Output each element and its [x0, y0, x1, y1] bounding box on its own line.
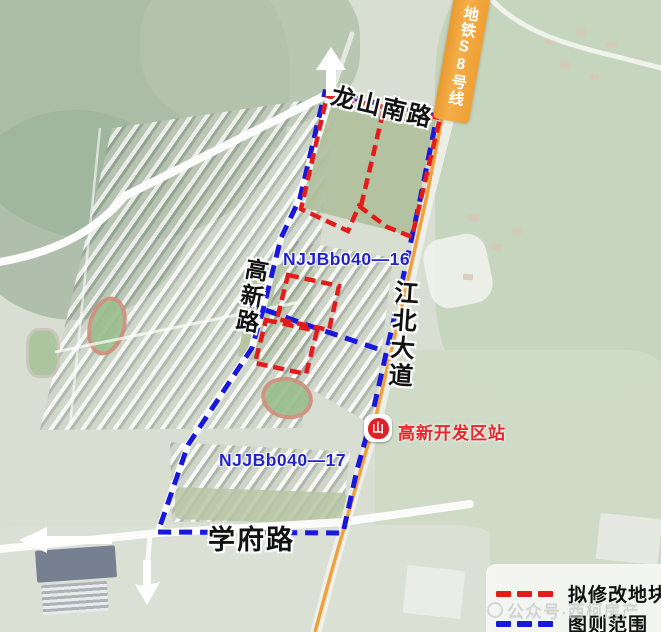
parcel-label-17: NJJBb040—17	[219, 450, 346, 471]
watermark: 公众号·西柯房产	[487, 597, 640, 622]
watermark-text: 公众号·西柯房产	[507, 597, 640, 622]
metro-s8-label: 地铁S8号线	[446, 4, 479, 107]
metro-logo-icon: 山	[368, 418, 389, 439]
metro-logo-glyph: 山	[372, 422, 384, 434]
arrow-left-icon	[19, 527, 112, 553]
red-dashed-line-icon	[496, 591, 559, 597]
watermark-logo-icon	[487, 602, 503, 618]
arrow-down-icon	[135, 560, 160, 605]
parcel-label-16: NJJBb040—16	[283, 249, 410, 270]
metro-station-icon: 山	[364, 414, 392, 442]
planning-map: 地铁S8号线 龙山南路 高新路 江北大道 学府路 NJJBb040—16 NJJ…	[0, 0, 661, 632]
station-label: 高新开发区站	[398, 419, 506, 444]
road-label-xuefu: 学府路	[208, 518, 295, 557]
